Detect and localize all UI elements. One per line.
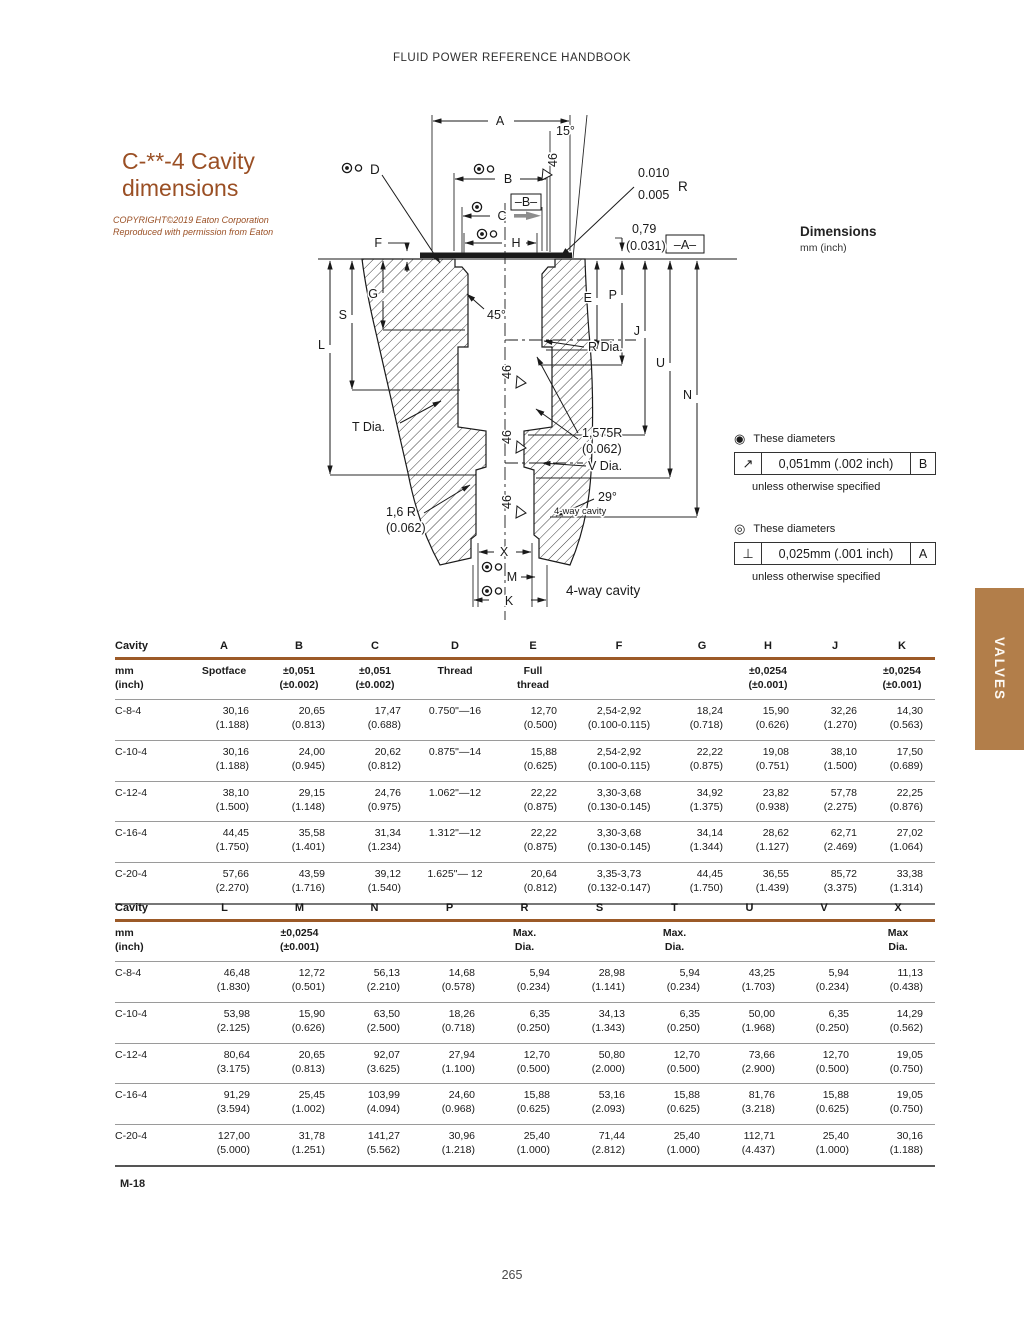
tolerance-note-runout: ◉ These diameters ↗ 0,051mm (.002 inch) … xyxy=(734,432,936,493)
value-cell: 5,94(0.234) xyxy=(637,962,712,1003)
value-cell: 81,76(3.218) xyxy=(712,1084,787,1125)
feature-control-frame-runout: ↗ 0,051mm (.002 inch) B xyxy=(734,452,936,475)
column-header: T xyxy=(637,900,712,921)
feature-control-frame-perpendicularity: ⊥ 0,025mm (.001 inch) A xyxy=(734,542,936,565)
column-subheader: Max.Dia. xyxy=(637,921,712,962)
r-dia-label: R Dia. xyxy=(588,340,623,354)
value-cell: 34,13(1.343) xyxy=(562,1003,637,1044)
column-header: N xyxy=(337,900,412,921)
column-header: B xyxy=(261,638,337,659)
column-subheader: ±0,0254(±0.001) xyxy=(262,921,337,962)
table-row: C-20-457,66(2.270)43,59(1.716)39,12(1.54… xyxy=(115,863,935,904)
chamfer-46-label-top: 46 xyxy=(546,153,560,167)
column-subheader: mm(inch) xyxy=(115,921,187,962)
value-cell: 91,29(3.594) xyxy=(187,1084,262,1125)
radius-16-mm: 1,6 R xyxy=(386,505,416,519)
value-cell: 57,78(2.275) xyxy=(801,781,869,822)
chamfer-46-label-mid1: 46 xyxy=(500,365,514,379)
runout-value-2: 0.005 xyxy=(638,188,669,202)
column-header: Cavity xyxy=(115,638,187,659)
table-row: C-10-453,98(2.125)15,90(0.626)63,50(2.50… xyxy=(115,1003,935,1044)
value-cell: 25,40(1.000) xyxy=(487,1125,562,1166)
value-cell: 25,40(1.000) xyxy=(637,1125,712,1166)
value-cell: 71,44(2.812) xyxy=(562,1125,637,1166)
value-cell: 43,59(1.716) xyxy=(261,863,337,904)
chamfer-46-label-mid3: 46 xyxy=(500,495,514,509)
dimension-table-2: CavityLMNPRSTUVXmm(inch)±0,0254(±0.001)M… xyxy=(115,900,935,1167)
column-header: S xyxy=(562,900,637,921)
table-row: C-12-480,64(3.175)20,65(0.813)92,07(3.62… xyxy=(115,1043,935,1084)
value-cell: 38,10(1.500) xyxy=(187,781,261,822)
value-cell: 12,72(0.501) xyxy=(262,962,337,1003)
column-header: H xyxy=(735,638,801,659)
value-cell: 44,45(1.750) xyxy=(187,822,261,863)
target-symbol-b xyxy=(474,164,493,173)
datum-b-label: –B– xyxy=(515,195,537,209)
dimension-table: CavityABCDEFGHJKmm(inch)Spotface±0,051(±… xyxy=(115,638,935,905)
column-subheader xyxy=(412,921,487,962)
cavity-name-cell: C-16-4 xyxy=(115,1084,187,1125)
value-cell: 19,08(0.751) xyxy=(735,741,801,782)
value-cell: 18,24(0.718) xyxy=(669,700,735,741)
cavity-cross-section-diagram: A B C H D F G S L E P J U N X M K 15° 45… xyxy=(290,95,750,635)
value-cell: 24,60(0.968) xyxy=(412,1084,487,1125)
value-cell: 85,72(3.375) xyxy=(801,863,869,904)
value-cell: 12,70(0.500) xyxy=(637,1043,712,1084)
copyright-note: COPYRIGHT©2019 Eaton Corporation Reprodu… xyxy=(113,214,273,238)
column-subheader: mm(inch) xyxy=(115,659,187,700)
value-cell: 30,16(1.188) xyxy=(187,741,261,782)
value-cell: 53,98(2.125) xyxy=(187,1003,262,1044)
column-subheader: Thread xyxy=(413,659,497,700)
dim-label-f: F xyxy=(374,236,382,250)
value-cell: 15,88(0.625) xyxy=(637,1084,712,1125)
section-code: M-18 xyxy=(120,1178,145,1190)
handbook-page: FLUID POWER REFERENCE HANDBOOK C-**-4 Ca… xyxy=(0,0,1024,1325)
value-cell: 3,35-3,73(0.132-0.147) xyxy=(569,863,669,904)
value-cell: 17,47(0.688) xyxy=(337,700,413,741)
cavity-name-cell: C-8-4 xyxy=(115,700,187,741)
value-cell: 15,88(0.625) xyxy=(487,1084,562,1125)
target-symbol-d xyxy=(342,163,361,172)
dim-label-a: A xyxy=(496,114,505,128)
value-cell: 35,58(1.401) xyxy=(261,822,337,863)
v-dia-label: V Dia. xyxy=(588,459,622,473)
value-cell: 0.875"—14 xyxy=(413,741,497,782)
dim-label-h: H xyxy=(511,236,520,250)
value-cell: 46,48(1.830) xyxy=(187,962,262,1003)
column-header: P xyxy=(412,900,487,921)
column-header: K xyxy=(869,638,935,659)
value-cell: 34,14(1.344) xyxy=(669,822,735,863)
cavity-name-cell: C-16-4 xyxy=(115,822,187,863)
value-cell: 30,96(1.218) xyxy=(412,1125,487,1166)
value-cell: 22,22(0.875) xyxy=(497,781,569,822)
value-cell: 33,38(1.314) xyxy=(869,863,935,904)
target-symbol-k xyxy=(482,586,501,595)
t-dia-label: T Dia. xyxy=(352,420,385,434)
circular-runout-icon: ↗ xyxy=(735,453,762,474)
column-subheader: ±0,0254(±0.001) xyxy=(869,659,935,700)
angle-15-label: 15° xyxy=(556,124,575,138)
table-row: C-12-438,10(1.500)29,15(1.148)24,76(0.97… xyxy=(115,781,935,822)
value-cell: 56,13(2.210) xyxy=(337,962,412,1003)
dim-label-d: D xyxy=(370,162,380,177)
table-row: C-8-430,16(1.188)20,65(0.813)17,47(0.688… xyxy=(115,700,935,741)
value-cell: 25,45(1.002) xyxy=(262,1084,337,1125)
cavity-name-cell: C-10-4 xyxy=(115,1003,187,1044)
value-cell: 18,26(0.718) xyxy=(412,1003,487,1044)
value-cell: 39,12(1.540) xyxy=(337,863,413,904)
value-cell: 28,98(1.141) xyxy=(562,962,637,1003)
value-cell: 62,71(2.469) xyxy=(801,822,869,863)
open-target-circle-icon: ◎ xyxy=(734,522,745,535)
column-header: J xyxy=(801,638,869,659)
column-header: U xyxy=(712,900,787,921)
value-cell: 1.312"—12 xyxy=(413,822,497,863)
value-cell: 103,99(4.094) xyxy=(337,1084,412,1125)
value-cell: 14,68(0.578) xyxy=(412,962,487,1003)
value-cell: 63,50(2.500) xyxy=(337,1003,412,1044)
cavity-name-cell: C-10-4 xyxy=(115,741,187,782)
four-way-cavity-label: 4-way cavity xyxy=(566,583,641,598)
value-cell: 34,92(1.375) xyxy=(669,781,735,822)
dim-label-s: S xyxy=(339,308,347,322)
value-cell: 15,90(0.626) xyxy=(735,700,801,741)
left-wall-hatched xyxy=(362,259,486,565)
value-cell: 50,00(1.968) xyxy=(712,1003,787,1044)
value-cell: 12,70(0.500) xyxy=(487,1043,562,1084)
cavity-name-cell: C-12-4 xyxy=(115,781,187,822)
value-cell: 31,34(1.234) xyxy=(337,822,413,863)
dimensions-note-units: mm (inch) xyxy=(800,242,877,254)
column-subheader: Max.Dia. xyxy=(487,921,562,962)
value-cell: 29,15(1.148) xyxy=(261,781,337,822)
column-header: R xyxy=(487,900,562,921)
radius-16-inch: (0.062) xyxy=(386,521,426,535)
value-cell: 141,27(5.562) xyxy=(337,1125,412,1166)
diagram-labels: A B C H D F G S L E P J U N X M K 15° 45… xyxy=(318,114,696,608)
dim-label-l: L xyxy=(318,338,325,352)
value-cell: 80,64(3.175) xyxy=(187,1043,262,1084)
value-cell: 19,05(0.750) xyxy=(861,1084,935,1125)
dim-label-m: M xyxy=(507,570,517,584)
dim-label-x: X xyxy=(500,545,509,559)
column-header: E xyxy=(497,638,569,659)
value-cell: 28,62(1.127) xyxy=(735,822,801,863)
column-subheader xyxy=(187,921,262,962)
value-cell: 44,45(1.750) xyxy=(669,863,735,904)
column-subheader xyxy=(337,921,412,962)
column-header: C xyxy=(337,638,413,659)
column-header: D xyxy=(413,638,497,659)
value-cell: 14,30(0.563) xyxy=(869,700,935,741)
runout-value-1: 0.010 xyxy=(638,166,669,180)
value-cell: 11,13(0.438) xyxy=(861,962,935,1003)
column-subheader xyxy=(787,921,861,962)
dimensions-note: Dimensions mm (inch) xyxy=(800,224,877,254)
dim-label-b: B xyxy=(504,172,512,186)
column-subheader: Spotface xyxy=(187,659,261,700)
runout-r-label: R xyxy=(678,179,688,194)
value-cell: 27,94(1.100) xyxy=(412,1043,487,1084)
value-cell: 6,35(0.250) xyxy=(487,1003,562,1044)
target-symbol-m xyxy=(482,562,501,571)
angle-29-label: 29° xyxy=(598,490,617,504)
table-row: C-10-430,16(1.188)24,00(0.945)20,62(0.81… xyxy=(115,741,935,782)
cavity-name-cell: C-8-4 xyxy=(115,962,187,1003)
column-header: A xyxy=(187,638,261,659)
value-cell: 19,05(0.750) xyxy=(861,1043,935,1084)
value-cell: 5,94(0.234) xyxy=(787,962,861,1003)
section-tab-valves: VALVES xyxy=(975,588,1024,750)
value-cell: 127,00(5.000) xyxy=(187,1125,262,1166)
value-cell: 22,22(0.875) xyxy=(497,822,569,863)
value-cell: 27,02(1.064) xyxy=(869,822,935,863)
value-cell: 14,29(0.562) xyxy=(861,1003,935,1044)
table-row: C-20-4127,00(5.000)31,78(1.251)141,27(5.… xyxy=(115,1125,935,1166)
dim-label-u: U xyxy=(656,356,665,370)
value-cell: 15,88(0.625) xyxy=(497,741,569,782)
column-header: L xyxy=(187,900,262,921)
page-title: C-**-4 Cavity dimensions xyxy=(122,148,255,202)
tolerance-outro-text: unless otherwise specified xyxy=(734,571,936,583)
column-subheader xyxy=(712,921,787,962)
angle-45-label: 45° xyxy=(487,308,506,322)
tolerance-outro-text: unless otherwise specified xyxy=(734,481,936,493)
column-header: G xyxy=(669,638,735,659)
dimension-table: CavityLMNPRSTUVXmm(inch)±0,0254(±0.001)M… xyxy=(115,900,935,1167)
dimension-table-1: CavityABCDEFGHJKmm(inch)Spotface±0,051(±… xyxy=(115,638,935,905)
column-header: Cavity xyxy=(115,900,187,921)
tolerance-value: 0,051mm (.002 inch) xyxy=(762,453,910,474)
chamfer-46-label-mid2: 46 xyxy=(500,430,514,444)
column-subheader: ±0,051(±0.002) xyxy=(261,659,337,700)
value-cell: 0.750"—16 xyxy=(413,700,497,741)
column-subheader: Fullthread xyxy=(497,659,569,700)
value-cell: 20,65(0.813) xyxy=(261,700,337,741)
value-cell: 25,40(1.000) xyxy=(787,1125,861,1166)
dim-label-p: P xyxy=(609,288,617,302)
value-cell: 73,66(2.900) xyxy=(712,1043,787,1084)
copyright-line2: Reproduced with permission from Eaton xyxy=(113,226,273,238)
value-cell: 20,64(0.812) xyxy=(497,863,569,904)
cavity-name-cell: C-12-4 xyxy=(115,1043,187,1084)
value-cell: 32,26(1.270) xyxy=(801,700,869,741)
column-subheader xyxy=(669,659,735,700)
value-cell: 12,70(0.500) xyxy=(497,700,569,741)
page-title-line1: C-**-4 Cavity xyxy=(122,148,255,175)
value-cell: 1.062"—12 xyxy=(413,781,497,822)
tolerance-intro-text: These diameters xyxy=(753,523,835,535)
taper-15deg-line xyxy=(573,115,587,258)
value-cell: 112,71(4.437) xyxy=(712,1125,787,1166)
right-wall-hatched xyxy=(524,259,593,565)
dim-label-g: G xyxy=(368,287,378,301)
dim-label-k: K xyxy=(505,594,514,608)
radius-1575-mm: 1,575R xyxy=(582,426,622,440)
value-cell: 2,54-2,92(0.100-0.115) xyxy=(569,741,669,782)
value-cell: 36,55(1.439) xyxy=(735,863,801,904)
cavity-name-cell: C-20-4 xyxy=(115,1125,187,1166)
dim-label-j: J xyxy=(634,324,640,338)
value-cell: 43,25(1.703) xyxy=(712,962,787,1003)
dim-label-c: C xyxy=(497,209,506,223)
column-subheader: ±0,051(±0.002) xyxy=(337,659,413,700)
thick-gray-arrow xyxy=(514,214,527,218)
column-subheader: MaxDia. xyxy=(861,921,935,962)
column-subheader xyxy=(569,659,669,700)
value-cell: 15,90(0.626) xyxy=(262,1003,337,1044)
target-symbol-h xyxy=(477,229,496,238)
value-cell: 24,00(0.945) xyxy=(261,741,337,782)
tolerance-intro-text: These diameters xyxy=(753,433,835,445)
value-cell: 92,07(3.625) xyxy=(337,1043,412,1084)
column-header: M xyxy=(262,900,337,921)
page-number: 265 xyxy=(0,1268,1024,1282)
datum-reference: A xyxy=(910,543,935,564)
column-subheader: ±0,0254(±0.001) xyxy=(735,659,801,700)
value-cell: 6,35(0.250) xyxy=(787,1003,861,1044)
table-row: C-16-444,45(1.750)35,58(1.401)31,34(1.23… xyxy=(115,822,935,863)
value-cell: 38,10(1.500) xyxy=(801,741,869,782)
column-subheader xyxy=(562,921,637,962)
filled-target-circle-icon: ◉ xyxy=(734,432,745,445)
perpendicularity-icon: ⊥ xyxy=(735,543,762,564)
cavity-name-cell: C-20-4 xyxy=(115,863,187,904)
page-title-line2: dimensions xyxy=(122,175,255,202)
copyright-line1: COPYRIGHT©2019 Eaton Corporation xyxy=(113,214,273,226)
value-cell: 20,65(0.813) xyxy=(262,1043,337,1084)
value-cell: 57,66(2.270) xyxy=(187,863,261,904)
table-row: C-16-491,29(3.594)25,45(1.002)103,99(4.0… xyxy=(115,1084,935,1125)
table-row: C-8-446,48(1.830)12,72(0.501)56,13(2.210… xyxy=(115,962,935,1003)
column-subheader xyxy=(801,659,869,700)
value-cell: 2,54-2,92(0.100-0.115) xyxy=(569,700,669,741)
value-cell: 3,30-3,68(0.130-0.145) xyxy=(569,781,669,822)
tolerance-value: 0,025mm (.001 inch) xyxy=(762,543,910,564)
datum-a-label: –A– xyxy=(674,238,696,252)
lip-height-mm: 0,79 xyxy=(632,222,656,236)
value-cell: 30,16(1.188) xyxy=(861,1125,935,1166)
value-cell: 22,25(0.876) xyxy=(869,781,935,822)
tolerance-note-perpendicularity: ◎ These diameters ⊥ 0,025mm (.001 inch) … xyxy=(734,522,936,583)
datum-reference: B xyxy=(910,453,935,474)
radius-1575-inch: (0.062) xyxy=(582,442,622,456)
value-cell: 15,88(0.625) xyxy=(787,1084,861,1125)
value-cell: 24,76(0.975) xyxy=(337,781,413,822)
value-cell: 1.625"— 12 xyxy=(413,863,497,904)
running-header: FLUID POWER REFERENCE HANDBOOK xyxy=(0,52,1024,64)
dimensions-note-title: Dimensions xyxy=(800,224,877,239)
value-cell: 22,22(0.875) xyxy=(669,741,735,782)
value-cell: 53,16(2.093) xyxy=(562,1084,637,1125)
column-header: X xyxy=(861,900,935,921)
value-cell: 23,82(0.938) xyxy=(735,781,801,822)
value-cell: 30,16(1.188) xyxy=(187,700,261,741)
value-cell: 6,35(0.250) xyxy=(637,1003,712,1044)
part-section xyxy=(318,115,737,620)
spotface-lip xyxy=(420,253,572,259)
value-cell: 20,62(0.812) xyxy=(337,741,413,782)
value-cell: 31,78(1.251) xyxy=(262,1125,337,1166)
value-cell: 50,80(2.000) xyxy=(562,1043,637,1084)
value-cell: 17,50(0.689) xyxy=(869,741,935,782)
target-symbol-c xyxy=(472,202,481,211)
value-cell: 3,30-3,68(0.130-0.145) xyxy=(569,822,669,863)
value-cell: 12,70(0.500) xyxy=(787,1043,861,1084)
dim-label-n: N xyxy=(683,388,692,402)
dim-label-e: E xyxy=(584,291,592,305)
four-way-cavity-small: 4-way cavity xyxy=(554,506,607,517)
value-cell: 5,94(0.234) xyxy=(487,962,562,1003)
column-header: V xyxy=(787,900,861,921)
lip-height-inch: (0.031) xyxy=(626,239,666,253)
column-header: F xyxy=(569,638,669,659)
